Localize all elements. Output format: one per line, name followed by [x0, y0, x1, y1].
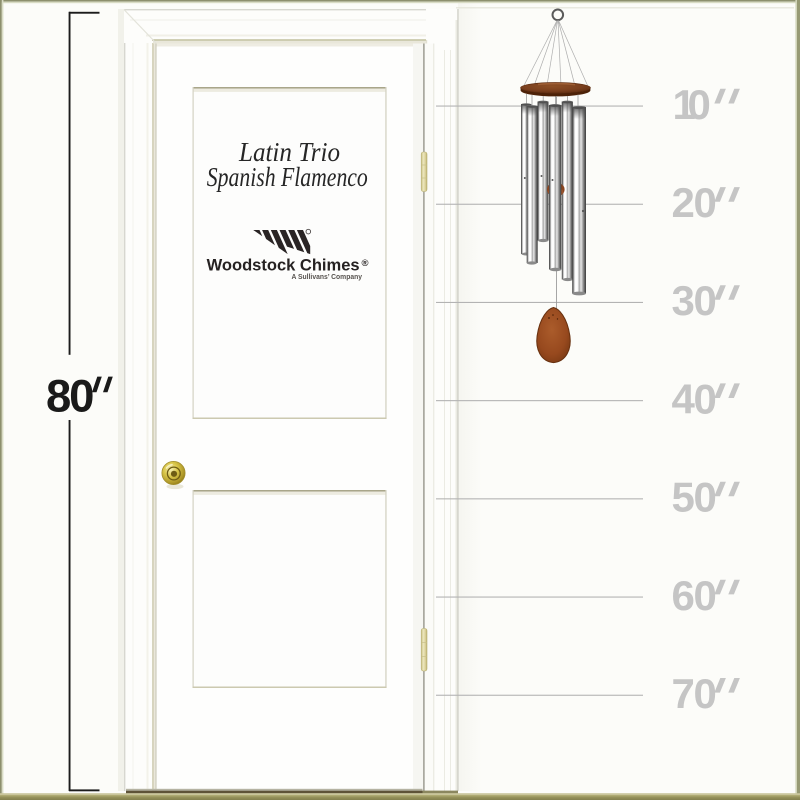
svg-text:80: 80	[46, 370, 93, 421]
svg-text:70: 70	[672, 670, 717, 717]
svg-text:40: 40	[672, 375, 717, 422]
svg-text:Spanish Flamenco: Spanish Flamenco	[207, 162, 368, 192]
svg-text:20: 20	[672, 179, 717, 226]
svg-text:10: 10	[673, 81, 711, 128]
svg-text:60: 60	[672, 572, 717, 619]
svg-text:50: 50	[672, 474, 717, 521]
svg-text:®: ®	[362, 258, 369, 269]
svg-text:Woodstock Chimes: Woodstock Chimes	[207, 257, 360, 275]
svg-text:A Sullivans’ Company: A Sullivans’ Company	[292, 274, 363, 281]
svg-text:30: 30	[672, 277, 717, 324]
